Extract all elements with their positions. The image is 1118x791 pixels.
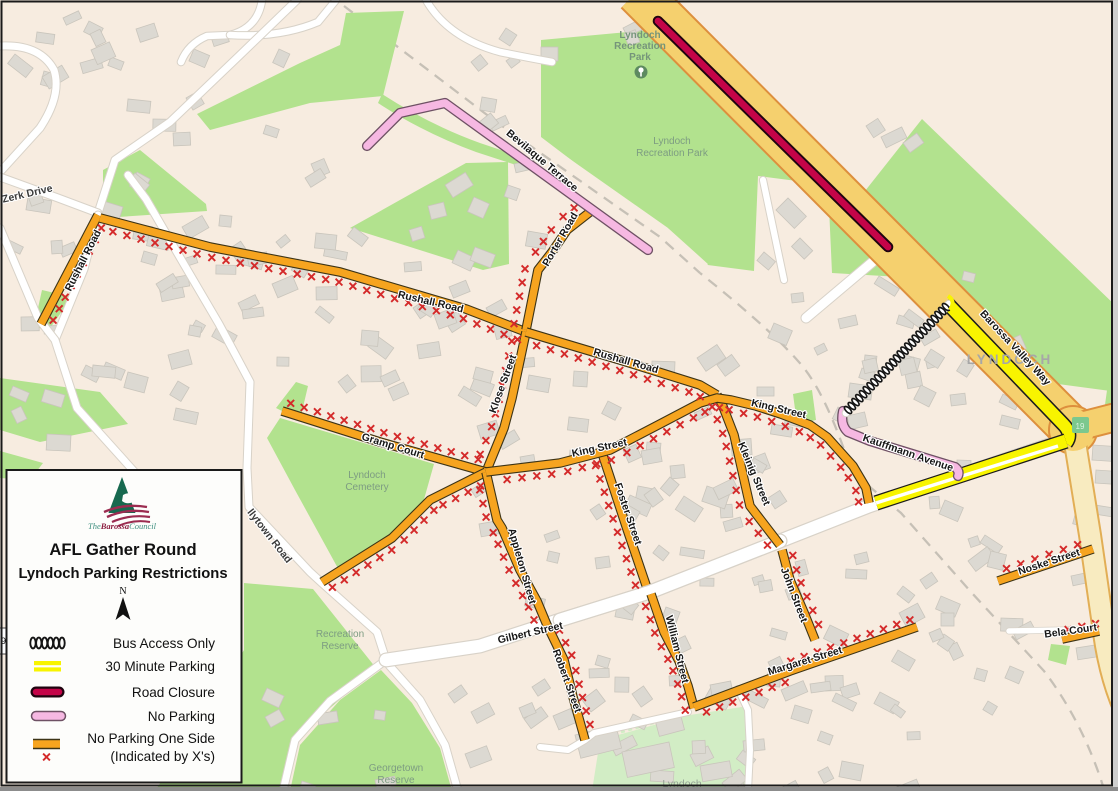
- svg-text:No Parking One Side: No Parking One Side: [87, 731, 215, 746]
- svg-text:Cemetery: Cemetery: [345, 482, 388, 493]
- svg-text:TheBarossaCouncil: TheBarossaCouncil: [88, 521, 157, 531]
- svg-text:Bus Access Only: Bus Access Only: [113, 636, 215, 651]
- svg-text:(Indicated by X's): (Indicated by X's): [110, 749, 215, 764]
- svg-text:Park: Park: [629, 52, 651, 63]
- svg-text:19: 19: [1076, 422, 1085, 431]
- svg-text:Lyndoch Parking Restrictions: Lyndoch Parking Restrictions: [18, 566, 227, 582]
- svg-text:AFL Gather Round: AFL Gather Round: [49, 540, 196, 559]
- svg-text:Recreation: Recreation: [614, 41, 666, 52]
- svg-text:Georgetown: Georgetown: [369, 763, 423, 774]
- svg-text:30 Minute Parking: 30 Minute Parking: [105, 659, 215, 674]
- svg-text:Lyndoch: Lyndoch: [653, 136, 690, 147]
- svg-text:Recreation Park: Recreation Park: [636, 148, 709, 159]
- svg-text:Reserve: Reserve: [377, 775, 415, 786]
- svg-text:Lyndoch: Lyndoch: [348, 470, 385, 481]
- svg-text:N: N: [119, 586, 126, 597]
- svg-text:No Parking: No Parking: [148, 709, 215, 724]
- svg-text:Reserve: Reserve: [321, 641, 359, 652]
- svg-text:Road Closure: Road Closure: [132, 685, 215, 700]
- svg-text:Recreation: Recreation: [316, 629, 364, 640]
- svg-text:Lyndoch: Lyndoch: [619, 30, 660, 41]
